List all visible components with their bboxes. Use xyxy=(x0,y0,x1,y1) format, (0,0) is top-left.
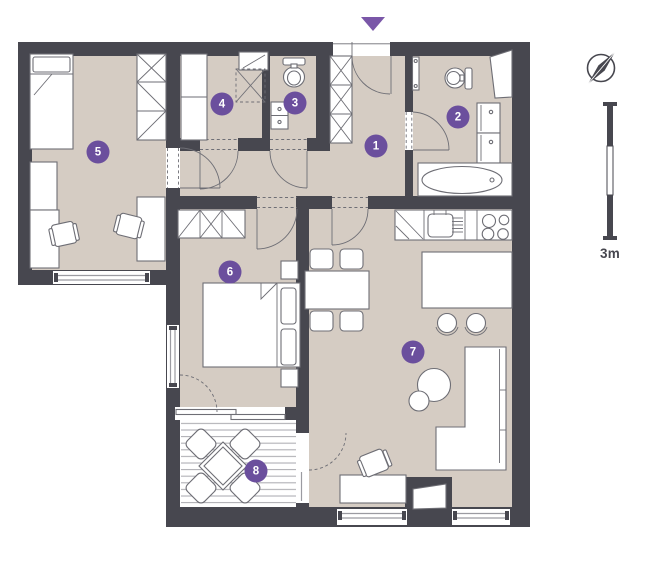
wardrobe-symbol xyxy=(137,54,166,140)
room-marker-7: 7 xyxy=(402,341,425,364)
toilet-symbol xyxy=(283,58,305,87)
room-marker-4: 4 xyxy=(211,93,234,116)
kitchen-counter-symbol xyxy=(395,210,512,240)
wardrobe-symbol xyxy=(330,56,352,143)
room-marker-3: 3 xyxy=(284,92,307,115)
scale-bar xyxy=(603,102,617,240)
sink-symbol xyxy=(428,214,453,237)
vanity-sink-symbol xyxy=(477,103,500,133)
shelf-symbol xyxy=(30,162,57,210)
door-opening-room5 xyxy=(166,148,180,188)
radiator-symbol xyxy=(413,57,420,90)
scale-label: 3m xyxy=(600,246,620,261)
shelf-symbol xyxy=(239,52,268,70)
door-opening-terrace xyxy=(296,433,309,470)
toilet-symbol xyxy=(445,68,472,89)
room-marker-2: 2 xyxy=(447,106,470,129)
bathtub-symbol xyxy=(418,163,512,196)
double-bed-symbol xyxy=(203,283,300,367)
side-table-symbol xyxy=(409,391,429,411)
window-living-right xyxy=(452,509,510,525)
bar-stool-symbol xyxy=(436,314,458,336)
room-marker-8: 8 xyxy=(245,460,268,483)
tv-symbol xyxy=(413,484,446,509)
desk-symbol xyxy=(340,475,406,503)
kitchen-island-symbol xyxy=(422,252,512,308)
nightstand-symbol xyxy=(281,369,298,387)
cabinet-symbol xyxy=(181,54,207,140)
wardrobe-symbol xyxy=(178,210,245,238)
nightstand-symbol xyxy=(281,261,298,279)
compass-icon xyxy=(588,52,616,84)
window-room5 xyxy=(53,271,150,284)
single-bed-symbol xyxy=(30,54,73,149)
entrance-arrow-icon xyxy=(361,17,385,31)
vanity-sink-symbol xyxy=(477,133,500,163)
bar-stool-symbol xyxy=(465,314,487,336)
floor-plan-canvas: 1 2 3 4 5 6 7 8 3m xyxy=(0,0,645,581)
room-marker-5: 5 xyxy=(87,141,110,164)
room-marker-6: 6 xyxy=(219,261,242,284)
sliding-door xyxy=(175,407,285,420)
window-terrace-living xyxy=(296,470,309,503)
room-marker-1: 1 xyxy=(365,135,388,158)
floor-plan-drawing xyxy=(0,0,645,581)
window-room6 xyxy=(167,325,179,388)
window-living-left xyxy=(337,509,407,525)
